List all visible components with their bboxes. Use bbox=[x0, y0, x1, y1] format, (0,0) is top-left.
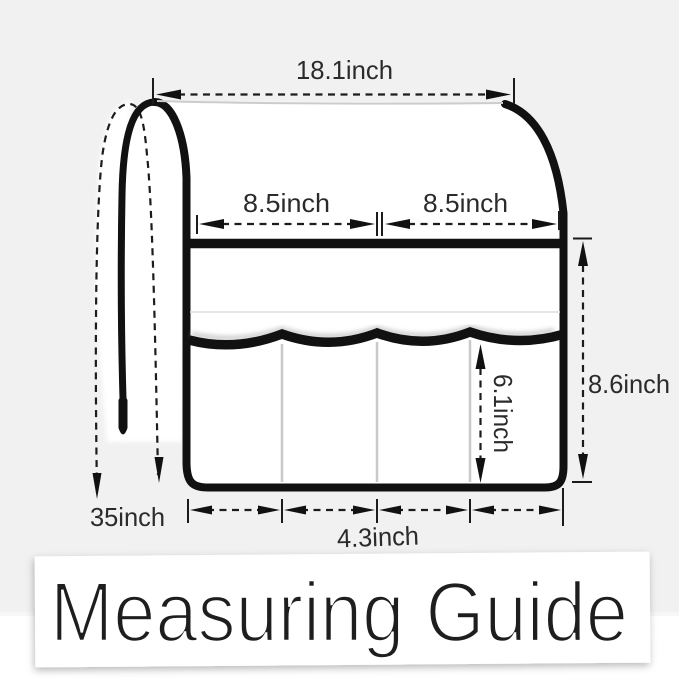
svg-text:8.6inch: 8.6inch bbox=[588, 369, 670, 399]
svg-text:4.3inch: 4.3inch bbox=[336, 521, 419, 554]
svg-text:6.1inch: 6.1inch bbox=[488, 374, 518, 453]
svg-text:35inch: 35inch bbox=[90, 502, 165, 532]
svg-text:8.5inch: 8.5inch bbox=[423, 188, 508, 218]
svg-text:18.1inch: 18.1inch bbox=[296, 55, 393, 85]
svg-text:8.5inch: 8.5inch bbox=[243, 188, 330, 218]
svg-text:Measuring Guide: Measuring Guide bbox=[50, 565, 628, 659]
